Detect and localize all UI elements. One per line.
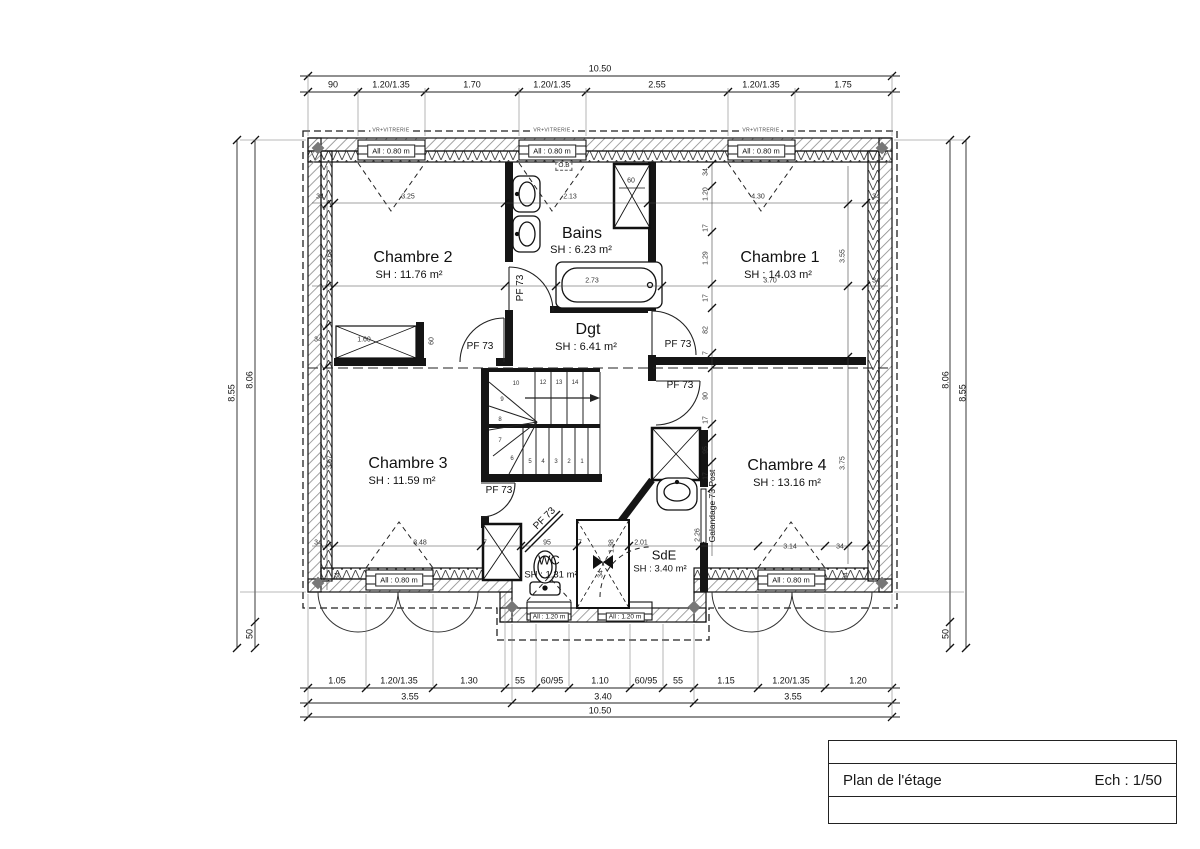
- title-block-main-row: Plan de l'étage Ech : 1/50: [829, 764, 1176, 797]
- title-block-empty-row: [829, 741, 1176, 764]
- window-sill-label: All : 0.80 m: [367, 145, 415, 158]
- window-sill-label: All : 0.80 m: [528, 145, 576, 158]
- window-sill-label: All : 1.20 m: [606, 613, 645, 622]
- title-block: Plan de l'étage Ech : 1/50: [828, 740, 1177, 824]
- window-sill-label: All : 1.20 m: [530, 613, 569, 622]
- window-sill-label: All : 0.80 m: [737, 145, 785, 158]
- window-sill-label: All : 0.80 m: [767, 574, 815, 587]
- title-block-empty-row: [829, 797, 1176, 823]
- scale-label: Ech : 1/50: [1094, 772, 1162, 789]
- window-sill-label: All : 0.80 m: [375, 574, 423, 587]
- plan-title: Plan de l'étage: [843, 772, 942, 789]
- window-label-layer: All : 0.80 mAll : 0.80 mAll : 0.80 mAll …: [0, 0, 1200, 849]
- floor-plan-page: 10.50901.20/1.351.701.20/1.352.551.20/1.…: [0, 0, 1200, 849]
